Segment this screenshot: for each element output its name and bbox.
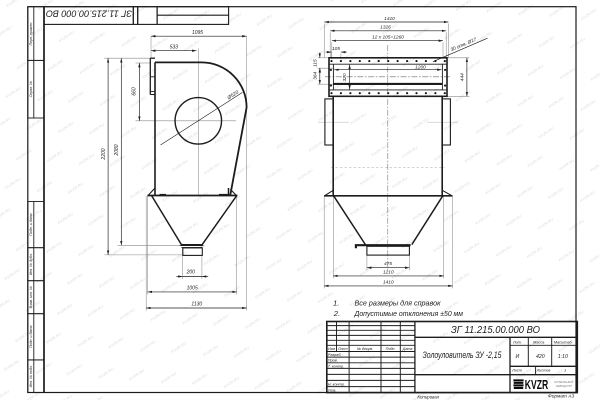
svg-text:ЗАВОД РЗТ: ЗАВОД РЗТ [556,384,574,388]
svg-text:533: 533 [170,44,179,50]
svg-text:2200: 2200 [101,148,107,160]
svg-text:Разраб.: Разраб. [328,353,342,357]
svg-text:ЗГ 11.215.00.000 ВО: ЗГ 11.215.00.000 ВО [45,9,132,20]
svg-text:Инв. № подл.: Инв. № подл. [29,365,33,387]
svg-text:200: 200 [186,269,196,275]
svg-text:Подп. и дата: Подп. и дата [29,326,33,349]
svg-text:Допустимые отклонения ±50 мм: Допустимые отклонения ±50 мм [354,309,464,318]
svg-text:№ докум.: № докум. [357,347,373,351]
svg-text:Дата: Дата [402,347,413,351]
svg-text:И: И [515,354,519,360]
svg-text:1095: 1095 [192,30,203,36]
svg-text:Справ. №: Справ. № [29,81,33,97]
svg-text:Подп. и дата: Подп. и дата [29,213,33,236]
svg-text:KVZR: KVZR [525,377,549,392]
svg-text:Масса: Масса [533,341,544,345]
svg-text:475: 475 [384,261,392,267]
svg-text:1.: 1. [333,299,339,308]
svg-text:1130: 1130 [191,302,202,308]
svg-text:Перв. примен.: Перв. примен. [29,22,33,46]
svg-text:Утв.: Утв. [328,388,337,392]
svg-text:444: 444 [460,73,466,81]
svg-text:1:10: 1:10 [558,354,568,360]
svg-text:320: 320 [342,73,348,81]
svg-text:Лит.: Лит. [512,341,522,345]
svg-text:Лист: Лист [511,368,522,372]
svg-text:1410: 1410 [384,16,395,22]
svg-text:1210: 1210 [383,270,394,276]
svg-text:Формат А3: Формат А3 [548,394,575,400]
svg-text:420: 420 [536,354,545,360]
svg-text:12 х 105=1260: 12 х 105=1260 [372,35,404,41]
svg-text:Инв. № дубл.: Инв. № дубл. [29,253,33,275]
svg-text:105: 105 [332,46,340,52]
svg-text:1005: 1005 [187,285,198,291]
svg-text:ЗГ 11.215.00.000 ВО: ЗГ 11.215.00.000 ВО [451,325,540,336]
svg-text:Изм: Изм [328,347,335,351]
svg-text:Золоуловитель ЗУ -2,15: Золоуловитель ЗУ -2,15 [423,350,502,361]
svg-text:1326: 1326 [380,25,391,31]
svg-text:1: 1 [564,368,566,372]
svg-text:1200: 1200 [415,64,426,70]
svg-text:Взам. инв. №: Взам. инв. № [29,286,33,308]
svg-text:364: 364 [312,71,318,79]
svg-text:1410: 1410 [383,280,394,286]
svg-text:2080: 2080 [114,144,120,156]
svg-text:Листов: Листов [536,368,551,372]
svg-text:Масштаб: Масштаб [554,341,573,345]
svg-text:Пров.: Пров. [328,359,338,363]
svg-text:Лист: Лист [337,347,348,351]
svg-text:Т. контр.: Т. контр. [328,364,344,368]
svg-text:Копировал: Копировал [417,395,439,400]
svg-text:2.: 2. [333,309,340,318]
svg-text:Н. контр.: Н. контр. [328,383,345,387]
svg-text:115: 115 [312,59,318,67]
svg-text:660: 660 [131,87,137,96]
svg-text:Все размеры для справок: Все размеры для справок [355,299,441,308]
svg-text:Подп.: Подп. [386,347,396,351]
